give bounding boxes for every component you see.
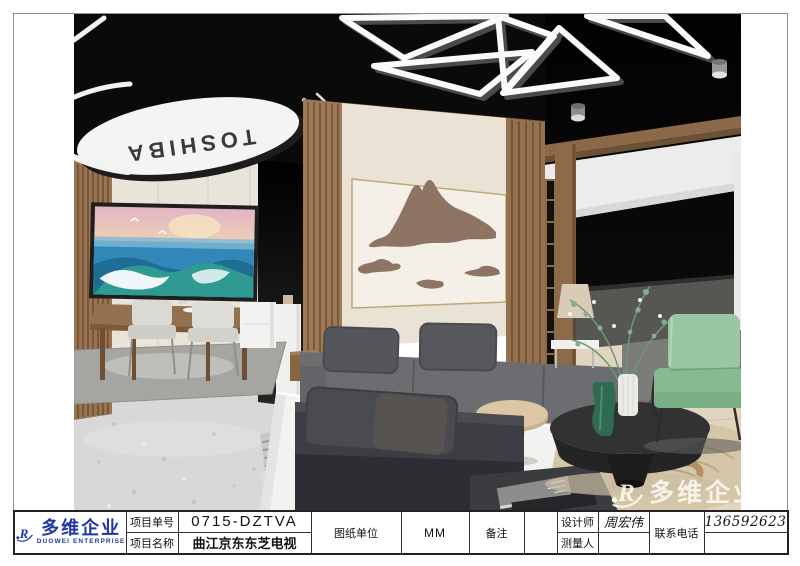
company-logo: R 多维企业 DUOWEI ENTERPRISE — [14, 511, 126, 554]
project-name-label: 项目名称 — [126, 532, 178, 554]
drawing-sheet: TOSHIBA — [0, 0, 800, 566]
tv-screen — [93, 206, 255, 297]
project-no-value: 0715-DZTVA — [178, 511, 311, 532]
render-image: TOSHIBA — [74, 14, 741, 510]
tv-display — [89, 202, 259, 301]
right-wall-edge — [734, 152, 741, 342]
company-name-en: DUOWEI ENTERPRISE — [37, 539, 126, 546]
project-no-label: 项目单号 — [126, 511, 178, 532]
title-block: R 多维企业 DUOWEI ENTERPRISE 项目单号 0715-DZTVA… — [13, 510, 788, 554]
remark-label: 备注 — [469, 511, 524, 554]
unit-value: MM — [401, 511, 469, 554]
remark-value — [524, 511, 557, 554]
partition-right-column — [506, 118, 545, 399]
company-logo-icon: R — [15, 518, 34, 548]
side-cabinet — [240, 302, 276, 348]
company-name-cn: 多维企业 — [41, 519, 121, 537]
designer-label: 设计师 — [557, 511, 598, 532]
designer-value: 周宏伟 — [598, 511, 649, 532]
project-name-value: 曲江京东东芝电视 — [178, 532, 311, 554]
unit-label: 图纸单位 — [311, 511, 401, 554]
feature-wall-art — [352, 179, 506, 308]
surveyor-value — [598, 532, 649, 554]
svg-text:R: R — [19, 526, 29, 541]
phone-value-empty — [704, 532, 788, 554]
surveyor-label: 测量人 — [557, 532, 598, 554]
phone-value: 13659262305 — [704, 511, 788, 532]
phone-label: 联系电话 — [649, 511, 704, 554]
render-scene: TOSHIBA — [74, 14, 741, 510]
